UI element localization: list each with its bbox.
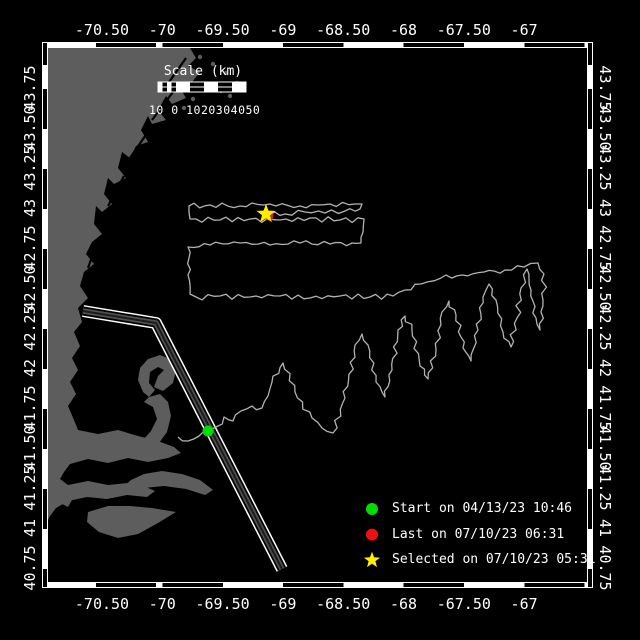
islet: [228, 94, 232, 98]
start-position-marker: [203, 426, 214, 437]
legend-item-label: Selected on 07/10/23 05:31: [392, 552, 596, 568]
map-canvas: [0, 0, 640, 640]
glider-track: [178, 202, 547, 441]
scalebar-tick-labels: 10 0 1020304050: [149, 103, 260, 117]
land-polygon: [87, 506, 176, 538]
islet: [198, 55, 202, 59]
scale-bar: [158, 82, 246, 92]
legend-start-icon: [366, 503, 378, 515]
legend-selected-icon: [364, 552, 380, 567]
land-polygon: [143, 394, 171, 448]
figure-canvas: { "figure": {"width": 640, "height": 640…: [0, 0, 640, 640]
legend-item-label: Start on 04/13/23 10:46: [392, 501, 572, 517]
land-polygons: [47, 48, 245, 538]
islet: [191, 97, 195, 101]
legend-last-icon: [366, 529, 378, 541]
legend-item-label: Last on 07/10/23 06:31: [392, 527, 564, 543]
glider-track-path: [178, 202, 547, 441]
legend-markers: [364, 503, 380, 567]
land-polygon: [48, 48, 200, 520]
scalebar-title: Scale (km): [164, 64, 242, 79]
